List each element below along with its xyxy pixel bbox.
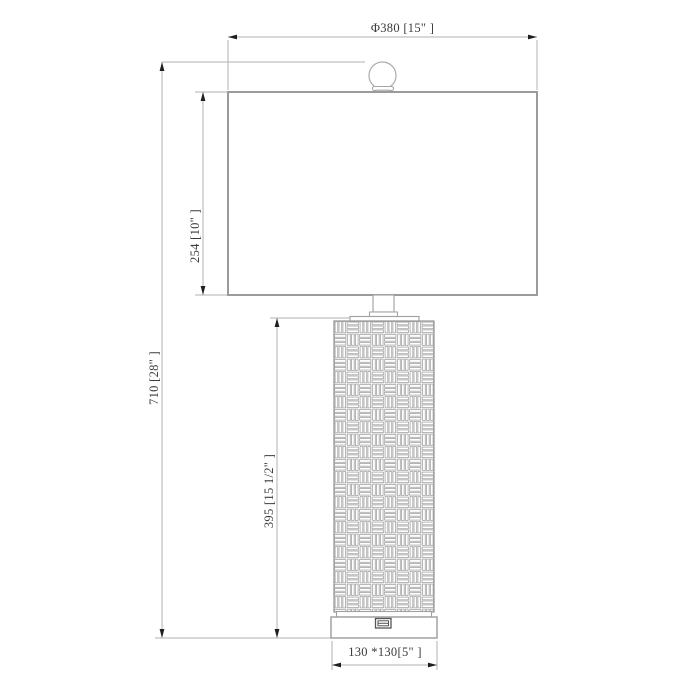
shade-diameter-label: Φ380 [15" ] [335, 21, 470, 35]
total-height-label: 710 [28" ] [147, 328, 161, 428]
usb-port-icon [376, 619, 392, 629]
body-bottom-cap [337, 612, 432, 618]
lamp-dimension-drawing: Φ380 [15" ] 710 [28" ] 254 [10" ] 395 [1… [0, 0, 700, 700]
finial-ball [369, 62, 396, 89]
drawing-canvas [0, 0, 700, 700]
neck [373, 295, 394, 312]
woven-body [334, 321, 434, 612]
lamp-shade [228, 92, 537, 295]
neck-collar [370, 312, 398, 317]
shade-height-label: 254 [10" ] [188, 191, 202, 281]
lamp-figure [228, 62, 537, 638]
body-height-label: 395 [15 1/2" ] [262, 436, 276, 546]
base-size-label: 130 *130[5" ] [322, 645, 448, 659]
